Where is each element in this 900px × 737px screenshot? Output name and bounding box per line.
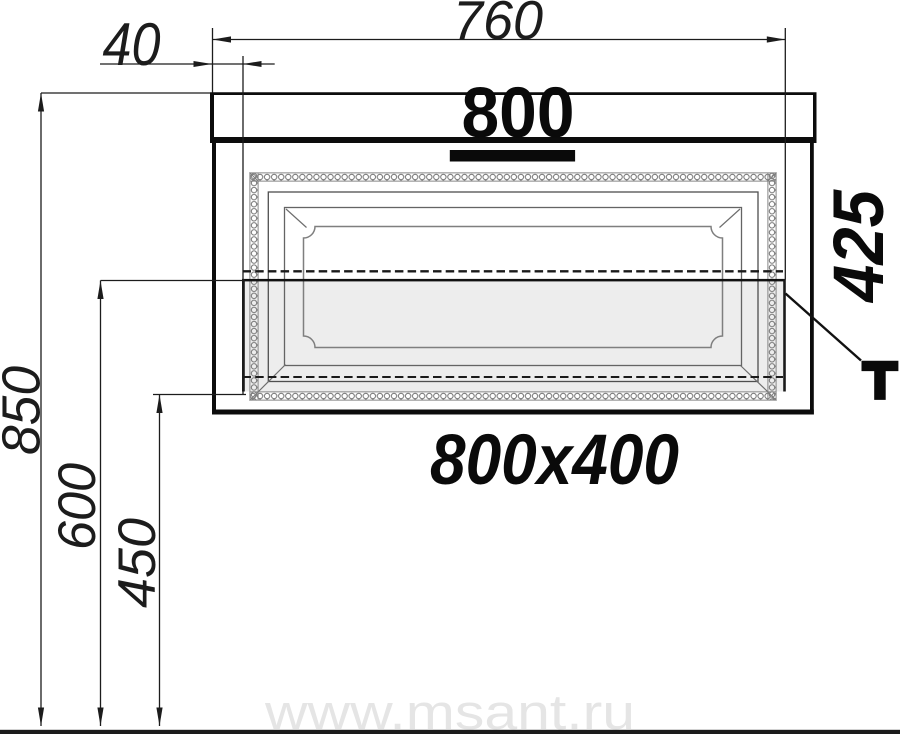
svg-text:800: 800: [462, 74, 575, 153]
svg-text:600: 600: [48, 462, 107, 550]
svg-text:425: 425: [820, 189, 899, 304]
svg-text:450: 450: [108, 517, 167, 608]
svg-text:800x400: 800x400: [430, 421, 679, 500]
svg-text:760: 760: [453, 0, 543, 51]
svg-text:850: 850: [0, 366, 51, 455]
svg-text:40: 40: [103, 11, 161, 78]
svg-text:www.msant.ru: www.msant.ru: [264, 686, 635, 737]
